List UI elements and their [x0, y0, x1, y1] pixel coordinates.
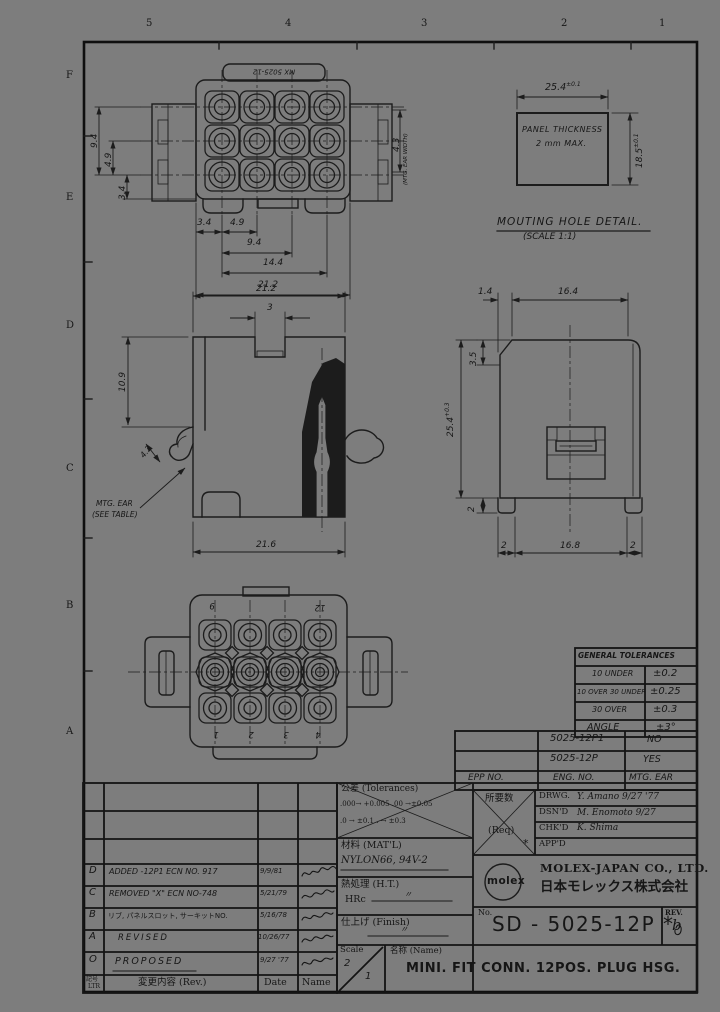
- scale-numerator: 2: [344, 959, 350, 970]
- dim-side-notch: 3: [267, 304, 273, 313]
- tolerance-table-title: GENERAL TOLERANCES: [578, 652, 675, 660]
- req-sub-label: (Req): [488, 826, 514, 836]
- zone-letter: C: [66, 463, 74, 474]
- pin-number: 3: [280, 729, 292, 738]
- tolerance-value: ±0.2: [653, 669, 677, 680]
- dim-front-bottom-a: 3.4: [197, 219, 211, 228]
- rev-date: 9/9/81: [260, 868, 283, 875]
- drawing-title: MINI. FIT CONN. 12POS. PLUG HSG.: [406, 962, 680, 976]
- zone-number: 4: [285, 18, 291, 29]
- zone-letter: D: [66, 320, 74, 331]
- chkd-label: CHK'D: [539, 824, 568, 833]
- dim-panel-height-value: 18.5: [635, 148, 645, 168]
- dim-front-bottom-b: 4.9: [230, 219, 244, 228]
- tolerances-line1: .000→ +0.005 .00 →±0.05: [340, 801, 432, 808]
- dim-end-bottom-b: 16.8: [560, 542, 580, 551]
- tolerance-value: ±0.3: [653, 705, 677, 716]
- finish-ditto: 〃: [400, 926, 408, 934]
- zone-letter: B: [66, 600, 73, 611]
- req-asterisk: *: [523, 838, 529, 850]
- end-view: [456, 293, 642, 557]
- dim-panel-width-tol: ±0.1: [566, 81, 581, 88]
- rev-footer-name: Name: [302, 978, 331, 988]
- panel-thickness-note-line1: PANEL THICKNESS: [522, 126, 602, 134]
- drwg-label: DRWG.: [539, 792, 570, 801]
- mtg-ear-note-line1: MTG. EAR: [96, 500, 133, 508]
- dsnd-signature: M. Enomoto 9/27: [577, 809, 656, 818]
- mounting-hole-caption: MOUTING HOLE DETAIL.: [497, 217, 642, 228]
- rev-date: 5/16/78: [260, 912, 287, 919]
- rev-desc: ADDED -12P1 ECN NO. 917: [109, 868, 218, 876]
- dim-front-left-outer: 9.4: [91, 134, 100, 148]
- dim-end-bottom-c: 2: [630, 542, 636, 551]
- molex-logo: molex: [487, 876, 525, 887]
- dim-front-right: 4.3: [393, 138, 402, 152]
- zone-number: 5: [146, 18, 152, 29]
- heat-treat-label: 熱処理 (H.T.): [341, 880, 399, 890]
- rev-ltr: B: [89, 910, 96, 921]
- rev-ltr: O: [89, 955, 97, 966]
- mounting-hole-scale: (SCALE 1:1): [523, 233, 576, 242]
- tolerance-range: 10 OVER 30 UNDER: [577, 689, 646, 696]
- hrc-label: HRc: [345, 895, 366, 905]
- tolerance-value: ±0.25: [650, 687, 681, 698]
- zone-number: 2: [561, 18, 567, 29]
- part-mtg-ear: YES: [643, 755, 661, 765]
- zone-letter: A: [66, 726, 73, 737]
- rev-date: 5/21/79: [260, 890, 287, 897]
- material-value: NYLON66, 94V-2: [341, 856, 428, 867]
- dim-end-top-a: 1.4: [478, 288, 492, 297]
- drawing-sheet: 5 4 3 2 1 F E D C B A MX 5025-12 9.4 4.9…: [0, 0, 720, 1012]
- part-table-header-epp: EPP NO.: [468, 774, 504, 783]
- rev-footer-ltr-en: LTR: [88, 984, 100, 990]
- dim-front-left-inner: 3.4: [119, 186, 128, 200]
- part-eng-no: 5025-12P: [550, 754, 598, 765]
- dim-front-bottom-c: 9.4: [247, 239, 261, 248]
- scale-denominator: 1: [365, 972, 371, 983]
- rev-footer-desc: 変更内容 (Rev.): [138, 978, 206, 988]
- side-view: [122, 292, 383, 557]
- appd-label: APP'D: [539, 840, 566, 849]
- rev-desc: REVISED: [118, 934, 169, 943]
- pin-number: 12: [312, 602, 328, 611]
- name-label: 名称 (Name): [390, 947, 442, 956]
- zone-letter: E: [66, 192, 73, 203]
- dim-panel-width: 25.4±0.1: [545, 82, 581, 93]
- company-name-jp: 日本モレックス株式会社: [540, 880, 688, 894]
- rev-ltr: D: [89, 866, 97, 877]
- dsnd-label: DSN'D: [539, 808, 568, 817]
- rev-footer-date: Date: [264, 978, 287, 988]
- req-label: 所要数: [485, 794, 514, 804]
- panel-thickness-note-line2: 2 mm MAX.: [536, 140, 587, 148]
- dim-panel-width-value: 25.4: [545, 82, 566, 93]
- mtg-ear-note-line2: (SEE TABLE): [92, 511, 138, 519]
- tolerance-range: ANGLE: [587, 723, 619, 733]
- rev-desc: REMOVED "X" ECN NO-748: [109, 890, 217, 898]
- drwg-signature: Y. Amano 9/27 '77: [577, 793, 659, 802]
- rev-desc: リブ, パネルスロット, サーキットNO.: [108, 913, 228, 920]
- rev-desc: PROPOSED: [115, 957, 183, 967]
- chkd-signature: K. Shima: [577, 824, 618, 833]
- zone-number: 3: [421, 18, 427, 29]
- housing-marking: MX 5025-12: [237, 67, 311, 74]
- material-label: 材料 (MAT'L): [341, 841, 402, 851]
- dim-front-bottom-d: 14.4: [263, 259, 283, 268]
- dim-end-height-tol: +0.3: [444, 402, 451, 417]
- rev-date: 10/26/77: [258, 934, 289, 941]
- rev-ltr: A: [89, 932, 96, 943]
- zone-number: 1: [659, 18, 665, 29]
- drawing-number: SD - 5025-12P *: [492, 914, 675, 935]
- dim-side-bottom: 21.6: [256, 541, 276, 550]
- dim-front-right-note: (MTG. EAR WIDTH): [404, 133, 410, 185]
- dim-side-ear: 4.3: [139, 445, 153, 460]
- part-table-header-eng: ENG. NO.: [553, 774, 594, 783]
- pin-number: 1: [210, 729, 222, 738]
- pin-number: 4: [312, 729, 324, 738]
- dim-side-left: 10.9: [119, 372, 128, 392]
- dim-end-bottom-a: 2: [501, 542, 507, 551]
- heat-treat-ditto: 〃: [404, 891, 412, 899]
- front-view: [95, 64, 406, 299]
- tolerance-range: 30 OVER: [592, 706, 627, 714]
- rear-view: [128, 587, 408, 759]
- dim-front-left-mid: 4.9: [105, 153, 114, 167]
- tolerances-line2: .0 → ±0.1 . → ±0.3: [340, 818, 406, 825]
- dim-panel-height: 18.5±0.1: [634, 133, 645, 168]
- pin-number: 2: [245, 729, 257, 738]
- dim-end-chamfer: 3.5: [470, 352, 479, 366]
- part-eng-no: 5025-12P1: [550, 734, 604, 745]
- tolerances-label: 公差 (Tolerances): [341, 785, 418, 794]
- tolerance-value: ±3°: [656, 723, 676, 734]
- part-mtg-ear: NO: [647, 735, 662, 745]
- scale-label: Scale: [340, 946, 363, 955]
- dim-panel-height-tol: ±0.1: [633, 133, 640, 148]
- dim-end-height: 25.4+0.3: [445, 402, 456, 437]
- dim-end-foot: 2: [468, 506, 477, 512]
- tolerance-range: 10 UNDER: [592, 670, 633, 678]
- company-name-en: MOLEX-JAPAN CO., LTD.: [540, 862, 709, 874]
- dim-end-height-value: 25.4: [446, 417, 456, 437]
- rev-ltr: C: [89, 888, 96, 899]
- drawing-no-label: No.: [478, 909, 492, 917]
- part-table-header-ear: MTG. EAR: [629, 774, 673, 783]
- rev-date: 9/27 '77: [260, 957, 289, 964]
- mounting-hole-view: [497, 90, 650, 231]
- pin-number: 9: [206, 600, 218, 609]
- dim-end-top-b: 16.4: [558, 288, 578, 297]
- rev-value: b: [672, 918, 682, 934]
- zone-letter: F: [66, 70, 73, 81]
- dim-side-top: 21.2: [256, 285, 276, 294]
